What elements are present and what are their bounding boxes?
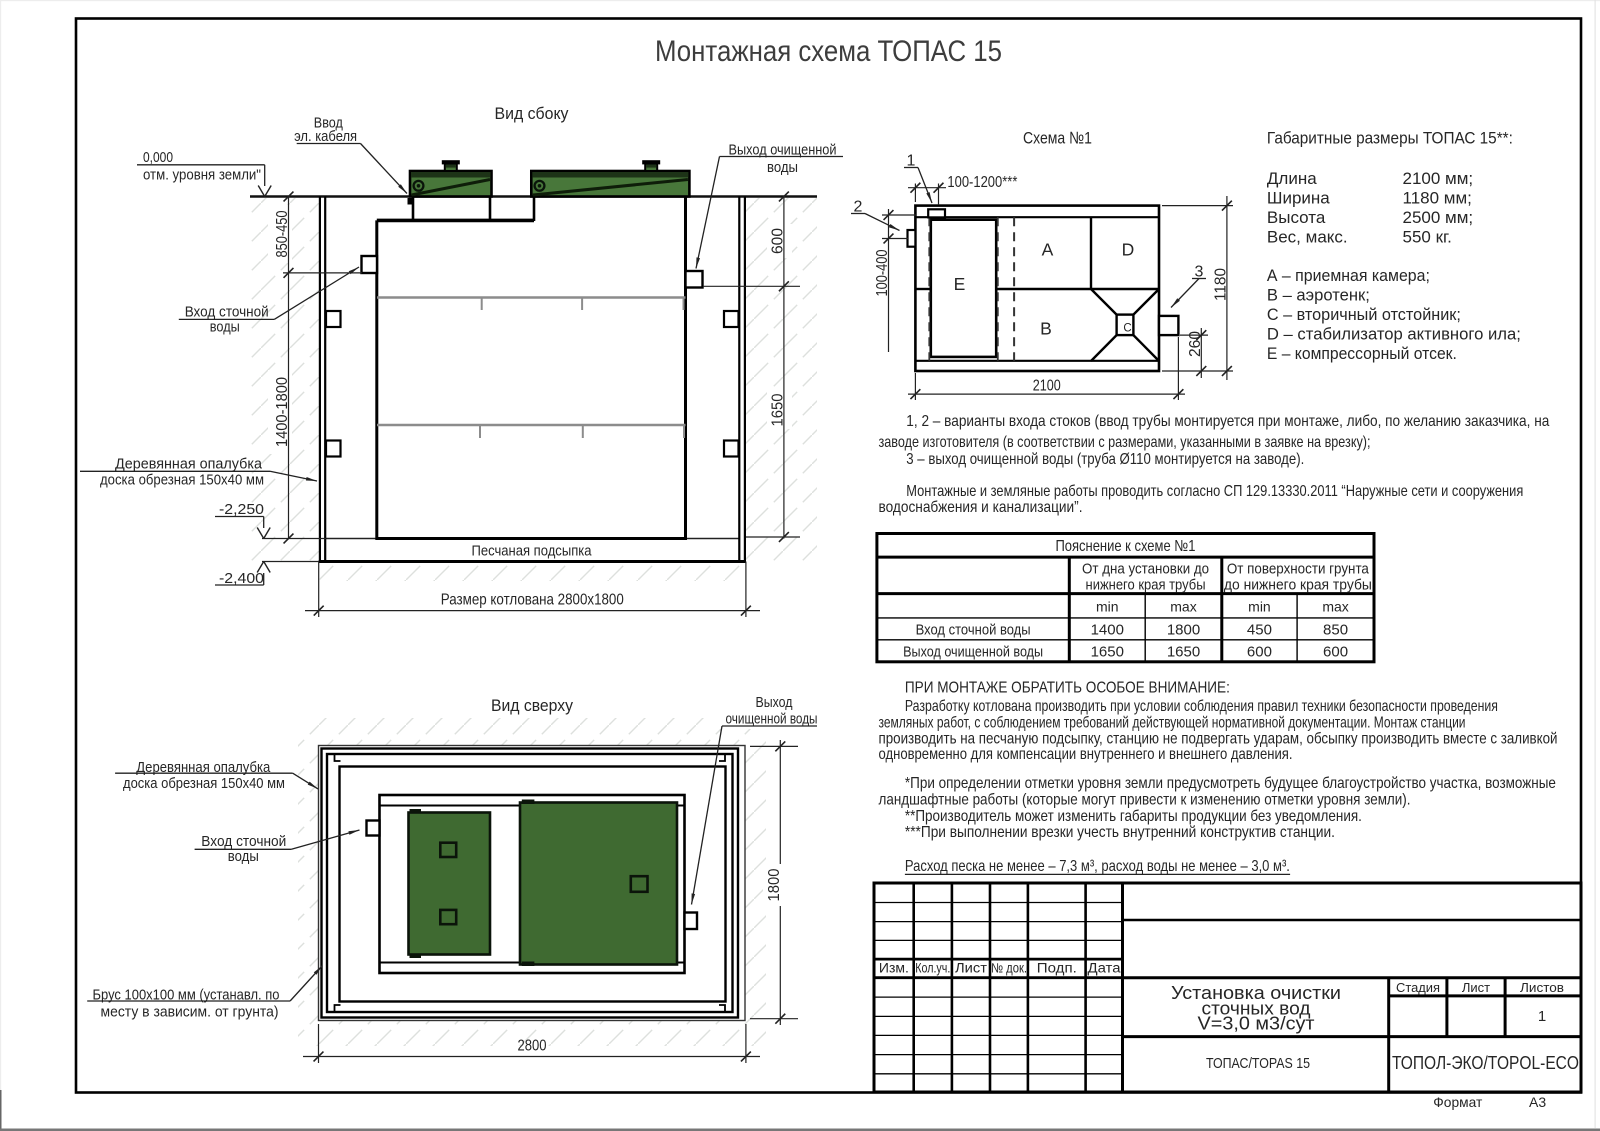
svg-text:Разработку котлована производи: Разработку котлована производить при усл… — [905, 698, 1498, 715]
svg-text:0,000: 0,000 — [143, 149, 173, 166]
svg-text:Вид сбоку: Вид сбоку — [495, 104, 569, 123]
svg-text:Кол.уч.: Кол.уч. — [915, 961, 950, 976]
svg-text:заводе изготовителя (в соответ: заводе изготовителя (в соответствии с ра… — [879, 434, 1371, 451]
svg-text:Песчаная подсыпка: Песчаная подсыпка — [472, 543, 593, 560]
svg-text:1650: 1650 — [1167, 644, 1200, 661]
svg-text:Вес, макс.: Вес, макс. — [1267, 228, 1348, 247]
svg-text:Стадия: Стадия — [1396, 980, 1440, 995]
svg-text:воды: воды — [767, 159, 798, 176]
svg-text:земляных работ, с соблюдением: земляных работ, с соблюдением требований… — [879, 715, 1466, 732]
svg-text:месту в зависим. от грунта): месту в зависим. от грунта) — [101, 1004, 279, 1021]
svg-text:Выход очищенной воды: Выход очищенной воды — [903, 644, 1043, 661]
svg-text:С: С — [1123, 323, 1131, 335]
svg-text:А3: А3 — [1529, 1094, 1546, 1110]
svg-text:В: В — [1040, 319, 1052, 339]
svg-text:Подп.: Подп. — [1037, 961, 1077, 976]
svg-text:доска обрезная 150х40 мм: доска обрезная 150х40 мм — [100, 472, 264, 489]
svg-text:max: max — [1322, 599, 1348, 615]
svg-text:V=3,0 м3/сут: V=3,0 м3/сут — [1198, 1014, 1315, 1034]
svg-text:Изм.: Изм. — [879, 961, 909, 976]
svg-text:1800: 1800 — [766, 868, 783, 901]
svg-text:2100 мм;: 2100 мм; — [1403, 169, 1474, 188]
svg-text:2100: 2100 — [1033, 378, 1061, 395]
svg-text:Монтажная схема ТОПАС 15: Монтажная схема ТОПАС 15 — [655, 35, 1002, 68]
svg-text:1180 мм;: 1180 мм; — [1403, 189, 1472, 208]
svg-text:Длина: Длина — [1267, 169, 1317, 188]
svg-text:100-1200***: 100-1200*** — [947, 174, 1017, 191]
svg-text:Расход песка не менее – 7,3 м³: Расход песка не менее – 7,3 м³, расход в… — [905, 858, 1290, 875]
svg-text:260: 260 — [1187, 331, 1204, 357]
svg-text:В – аэротенк;: В – аэротенк; — [1267, 286, 1370, 305]
svg-text:С – вторичный отстойник;: С – вторичный отстойник; — [1267, 305, 1461, 324]
svg-text:отм. уровня земли": отм. уровня земли" — [143, 167, 261, 184]
svg-text:Лист: Лист — [955, 961, 987, 976]
svg-text:Вид сверху: Вид сверху — [491, 696, 573, 715]
svg-text:-2,250: -2,250 — [219, 501, 264, 518]
svg-text:D – стабилизатор активного ила: D – стабилизатор активного ила; — [1267, 325, 1521, 344]
svg-text:Габаритные размеры ТОПАС 15**:: Габаритные размеры ТОПАС 15**: — [1267, 129, 1513, 148]
svg-text:3 – выход очищенной воды (труб: 3 – выход очищенной воды (труба Ø110 мон… — [906, 451, 1304, 468]
svg-text:D: D — [1122, 240, 1135, 260]
svg-text:воды: воды — [228, 848, 259, 865]
svg-text:1: 1 — [1538, 1008, 1546, 1025]
svg-text:1180: 1180 — [1213, 268, 1230, 301]
svg-text:2800: 2800 — [518, 1038, 547, 1055]
svg-text:Листов: Листов — [1520, 980, 1564, 995]
svg-text:ландшафтные работы (которые мо: ландшафтные работы (которые могут привес… — [879, 792, 1411, 809]
svg-text:1650: 1650 — [770, 393, 787, 426]
svg-text:Е: Е — [954, 274, 966, 294]
svg-text:450: 450 — [1247, 622, 1272, 639]
svg-text:min: min — [1248, 599, 1271, 615]
svg-text:1400: 1400 — [1091, 622, 1124, 639]
svg-text:Вход сточной воды: Вход сточной воды — [916, 622, 1031, 639]
svg-text:1650: 1650 — [1091, 644, 1124, 661]
svg-text:Ширина: Ширина — [1267, 189, 1330, 208]
svg-text:**Производитель может изменить: **Производитель может изменить габариты … — [905, 808, 1362, 825]
svg-text:до нижнего края трубы: до нижнего края трубы — [1224, 577, 1372, 594]
svg-text:эл. кабеля: эл. кабеля — [294, 128, 357, 145]
svg-text:ТОПАС/TOPAS 15: ТОПАС/TOPAS 15 — [1206, 1055, 1310, 1072]
svg-text:водоснабжения и канализации”.: водоснабжения и канализации”. — [879, 499, 1083, 516]
svg-text:Высота: Высота — [1267, 208, 1326, 227]
svg-text:max: max — [1170, 599, 1196, 615]
svg-text:1800: 1800 — [1167, 622, 1200, 639]
svg-text:Формат: Формат — [1433, 1094, 1483, 1110]
svg-text:Монтажные и земляные работы пр: Монтажные и земляные работы проводить со… — [906, 483, 1523, 500]
svg-text:*При определении отметки уровн: *При определении отметки уровня земли пр… — [905, 775, 1556, 792]
svg-text:А – приемная камера;: А – приемная камера; — [1267, 266, 1430, 285]
svg-text:***При выполнении врезки учест: ***При выполнении врезки учесть внутренн… — [905, 824, 1335, 841]
svg-text:Размер котлована 2800х1800: Размер котлована 2800х1800 — [441, 592, 624, 609]
svg-text:ПРИ МОНТАЖЕ ОБРАТИТЬ ОСОБОЕ ВН: ПРИ МОНТАЖЕ ОБРАТИТЬ ОСОБОЕ ВНИМАНИЕ: — [905, 680, 1230, 697]
svg-text:1, 2 – варианты входа стоков: 1, 2 – варианты входа стоков (ввод трубы… — [906, 413, 1549, 430]
svg-text:Деревянная опалубка: Деревянная опалубка — [115, 456, 263, 473]
svg-text:850-450: 850-450 — [274, 210, 291, 257]
svg-text:Дата: Дата — [1088, 961, 1122, 976]
svg-text:производить на песчаную подсып: производить на песчаную подсыпку, станци… — [879, 731, 1558, 748]
svg-text:2500 мм;: 2500 мм; — [1403, 208, 1474, 227]
svg-text:№ док.: № док. — [991, 961, 1027, 976]
svg-text:100-400: 100-400 — [874, 249, 891, 296]
svg-text:А: А — [1042, 240, 1054, 260]
svg-text:600: 600 — [1247, 644, 1272, 661]
svg-text:600: 600 — [770, 228, 787, 254]
svg-text:доска обрезная 150х40 мм: доска обрезная 150х40 мм — [123, 775, 285, 792]
svg-text:От дна установки до: От дна установки до — [1082, 561, 1209, 578]
svg-text:нижнего края трубы: нижнего края трубы — [1086, 577, 1206, 594]
svg-text:550 кг.: 550 кг. — [1403, 228, 1452, 247]
svg-text:очищенной воды: очищенной воды — [726, 711, 818, 728]
svg-text:600: 600 — [1323, 644, 1348, 661]
svg-text:ТОПОЛ-ЭКО/TOPOL-ECO: ТОПОЛ-ЭКО/TOPOL-ECO — [1392, 1053, 1579, 1073]
svg-text:850: 850 — [1323, 622, 1348, 639]
svg-text:Выход: Выход — [756, 694, 793, 711]
svg-text:Схема №1: Схема №1 — [1023, 129, 1092, 148]
svg-text:min: min — [1096, 599, 1119, 615]
svg-text:воды: воды — [210, 319, 240, 336]
svg-text:1400-1800: 1400-1800 — [274, 377, 291, 447]
svg-text:Лист: Лист — [1462, 980, 1490, 995]
svg-text:От поверхности грунта: От поверхности грунта — [1227, 561, 1370, 578]
svg-text:Пояснение к схеме №1: Пояснение к схеме №1 — [1055, 538, 1195, 555]
svg-text:одновременно для компенсации в: одновременно для компенсации внутреннего… — [879, 746, 1293, 763]
svg-text:Е – компрессорный отсек.: Е – компрессорный отсек. — [1267, 344, 1457, 363]
